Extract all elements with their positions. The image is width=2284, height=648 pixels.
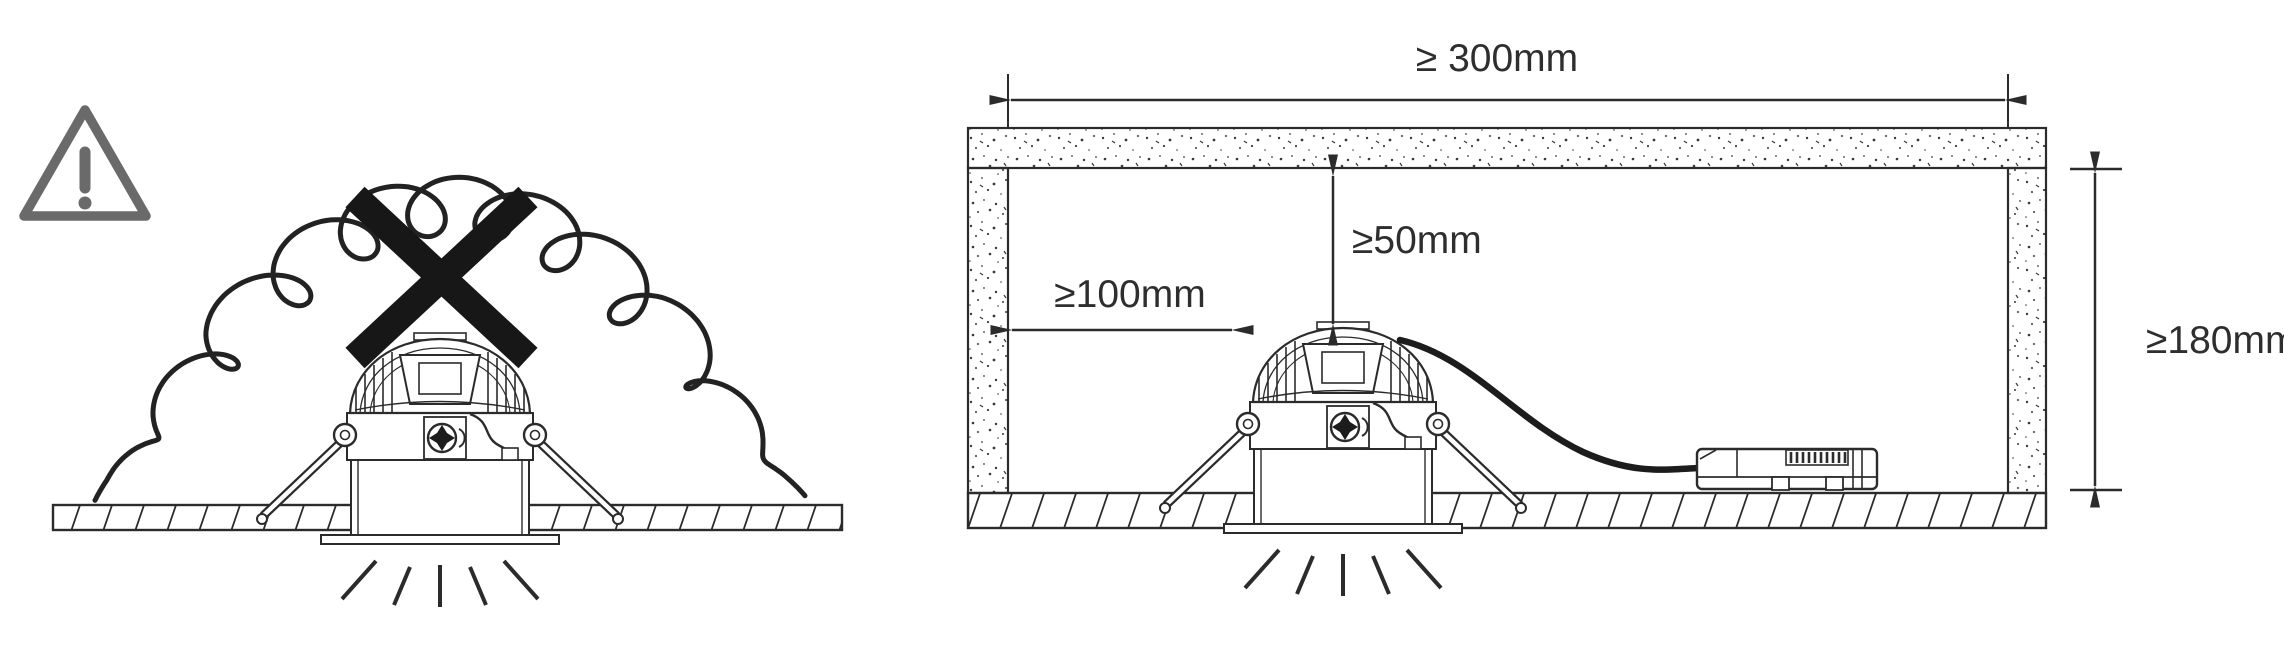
dimension-height-label: ≥180mm [2146, 319, 2284, 362]
no-insulation-warning-panel [24, 110, 842, 607]
driver-cable [1400, 340, 1698, 470]
warning-triangle-icon [24, 110, 146, 216]
recessed-downlight-right [1160, 322, 1526, 596]
recessed-downlight-left [257, 333, 623, 607]
dimension-above-50: ≥50mm [1333, 176, 1482, 324]
installation-clearance-diagram: ≥ 300mm ≥50mm ≥100mm ≥180mm [0, 0, 2284, 648]
installation-diagram-page: ≥ 300mm ≥50mm ≥100mm ≥180mm [0, 0, 2284, 648]
dimension-above-label: ≥50mm [1352, 219, 1482, 262]
led-driver [1697, 449, 1877, 490]
dimension-side-100: ≥100mm [1012, 273, 1232, 330]
clearance-dimensions-panel: ≥ 300mm ≥50mm ≥100mm ≥180mm [968, 37, 2284, 596]
dimension-width-300: ≥ 300mm [1008, 37, 2008, 127]
dimension-width-label: ≥ 300mm [1416, 37, 1578, 80]
dimension-side-label: ≥100mm [1054, 273, 1205, 316]
dimension-height-180: ≥180mm [2070, 169, 2284, 490]
